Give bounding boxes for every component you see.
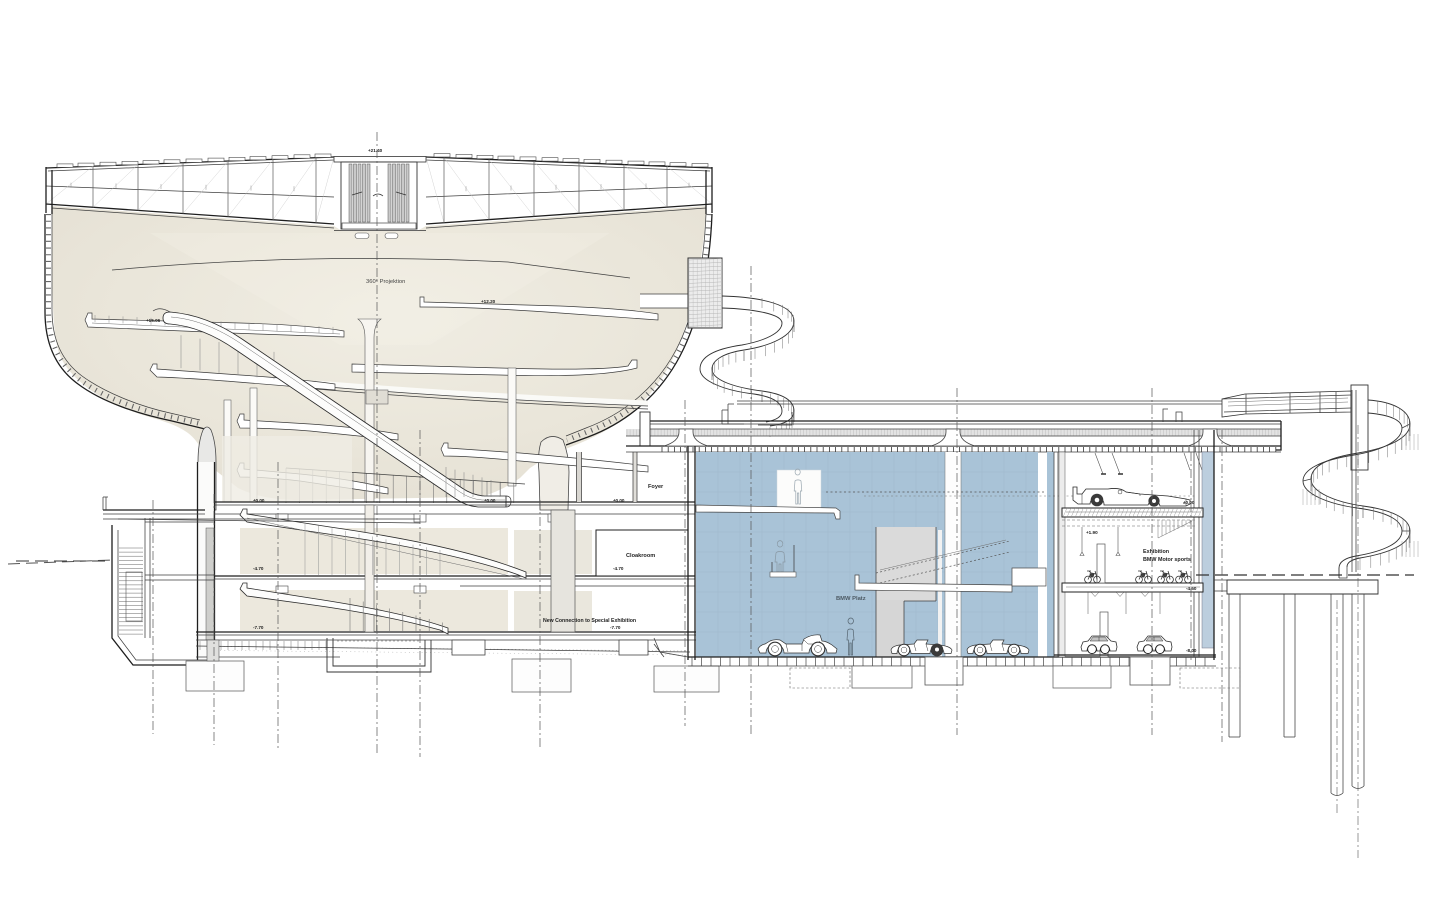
svg-text:+15.06: +15.06 <box>146 318 161 323</box>
svg-text:±0.00: ±0.00 <box>253 498 265 503</box>
svg-text:-8.00: -8.00 <box>1186 648 1197 653</box>
svg-text:BMW Motor sports: BMW Motor sports <box>1143 557 1191 563</box>
svg-text:-4.70: -4.70 <box>253 566 264 571</box>
svg-text:-7.70: -7.70 <box>253 625 264 630</box>
svg-text:New Connection to Special Exhi: New Connection to Special Exhibition <box>543 618 636 624</box>
svg-text:BMW Platz: BMW Platz <box>836 596 866 602</box>
svg-text:-7.70: -7.70 <box>610 625 621 630</box>
svg-text:±0.00: ±0.00 <box>613 498 625 503</box>
svg-text:Exhibition: Exhibition <box>1143 549 1169 555</box>
svg-text:+12.20: +12.20 <box>481 299 496 304</box>
svg-text:Foyer: Foyer <box>648 484 664 490</box>
svg-text:-4.50: -4.50 <box>1186 586 1197 591</box>
svg-text:+21.40: +21.40 <box>368 148 383 153</box>
svg-text:360° Projektion: 360° Projektion <box>366 279 405 285</box>
svg-text:Cloakroom: Cloakroom <box>626 553 655 559</box>
svg-text:±0.00: ±0.00 <box>484 498 496 503</box>
svg-text:-4.70: -4.70 <box>613 566 624 571</box>
svg-text:±0.00: ±0.00 <box>1183 500 1195 505</box>
svg-text:+1.90: +1.90 <box>1086 530 1098 535</box>
